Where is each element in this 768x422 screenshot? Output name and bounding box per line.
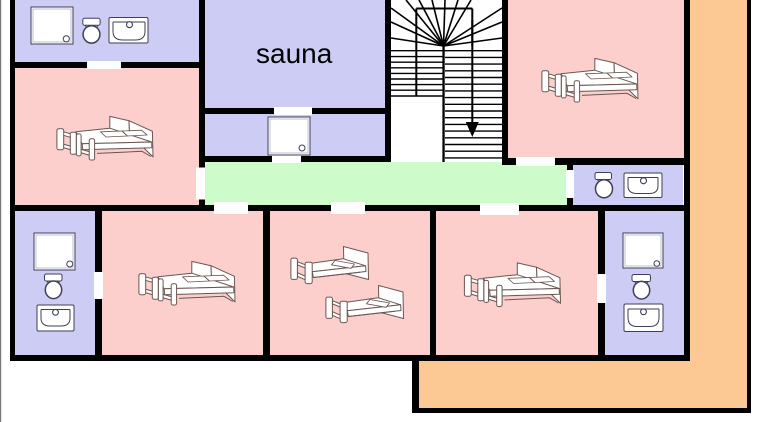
svg-text:sauna: sauna — [256, 38, 333, 69]
